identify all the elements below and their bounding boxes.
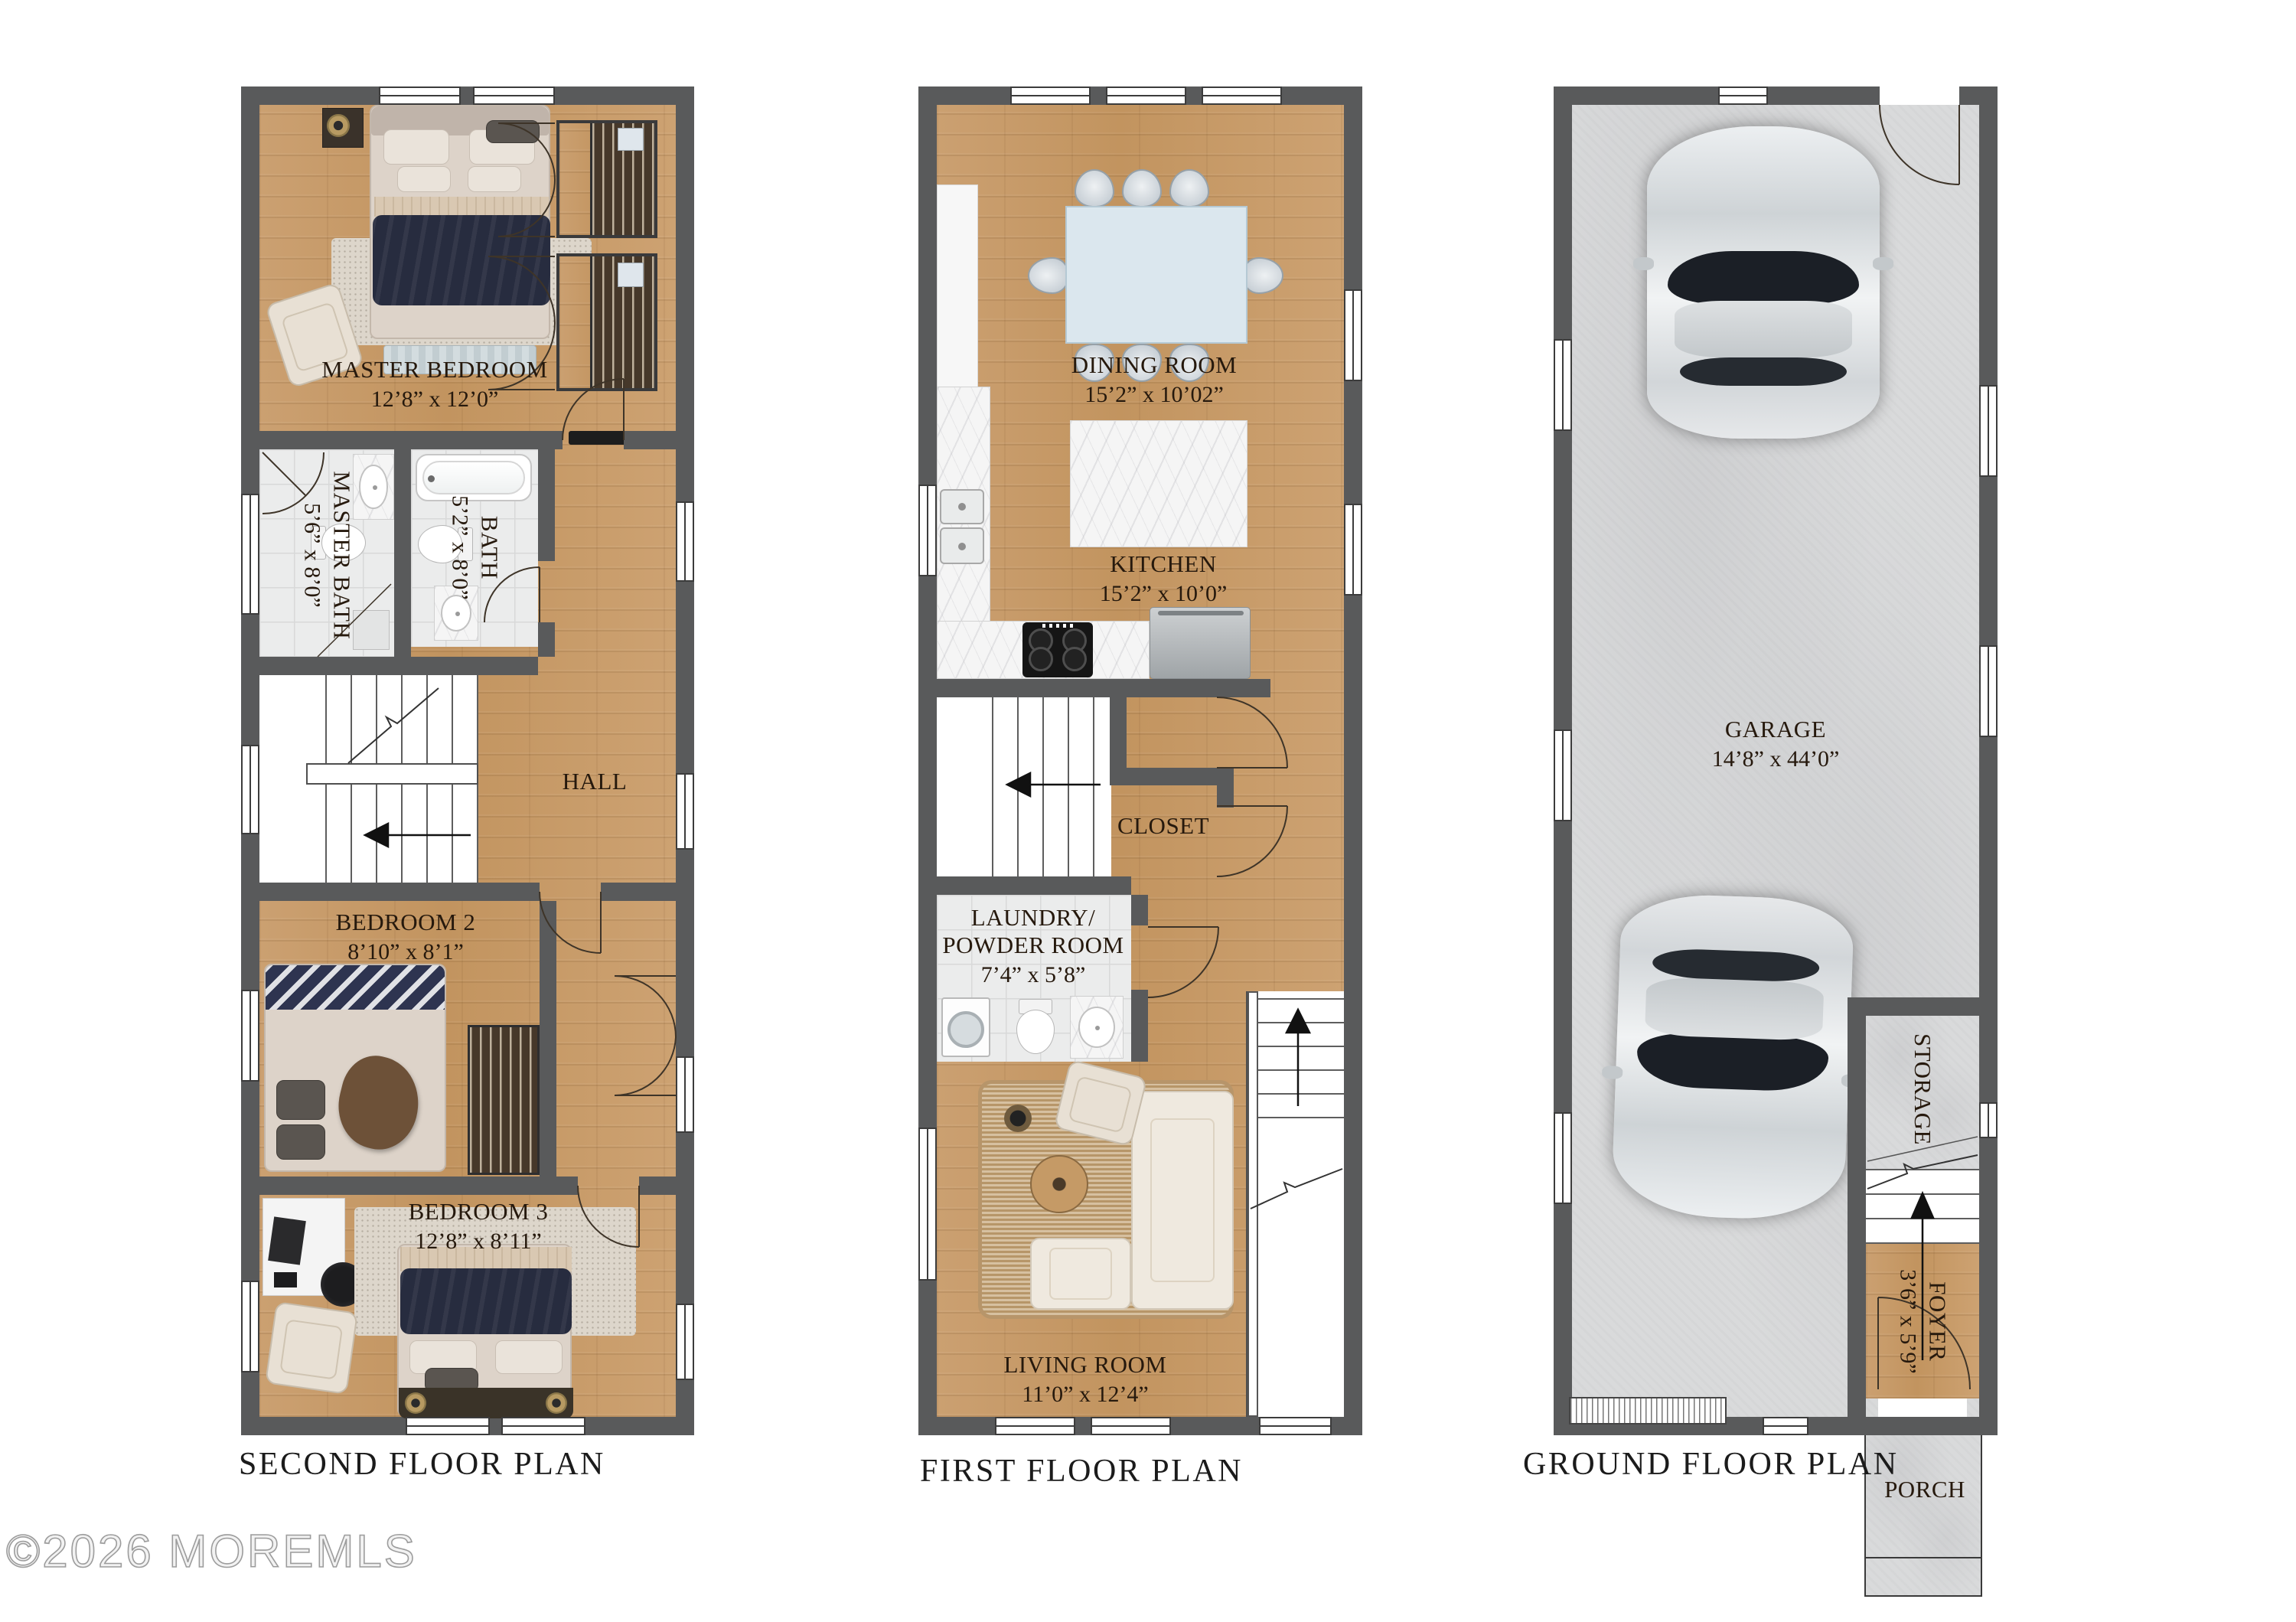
- room-label-foyer: FOYER 3’6” x 5’9”: [1894, 1222, 1952, 1421]
- wall: [1217, 768, 1234, 808]
- throw-blanket: [329, 1049, 429, 1157]
- bed: [397, 1244, 572, 1417]
- first-floor-plan: DINING ROOM 15’2” x 10’02” KITCHEN 15’2”…: [918, 86, 1362, 1435]
- window: [1763, 1417, 1808, 1435]
- closet: [556, 120, 657, 238]
- coffee-table: [1030, 1155, 1088, 1213]
- pillow: [486, 120, 540, 143]
- floor-plan-sheet: MASTER BEDROOM 12’8” x 12’0” MASTER BATH…: [0, 0, 2296, 1622]
- window: [1202, 86, 1282, 105]
- shower: [353, 610, 390, 650]
- blanket: [373, 215, 550, 305]
- window: [1554, 339, 1572, 431]
- wall: [259, 657, 538, 675]
- sofa-chaise: [1030, 1238, 1131, 1310]
- window: [1091, 1417, 1171, 1435]
- refrigerator: [1150, 607, 1251, 679]
- wall: [259, 883, 540, 901]
- room-label-laundry: LAUNDRY/ POWDER ROOM 7’4” x 5’8”: [934, 904, 1133, 989]
- sofa: [1131, 1091, 1234, 1310]
- window: [676, 501, 694, 582]
- wall: [937, 679, 1270, 697]
- door-opening: [1880, 86, 1959, 105]
- title-ground-floor: GROUND FLOOR PLAN: [1523, 1446, 1899, 1483]
- kitchen-island: [1070, 420, 1247, 547]
- ground-floor-plan: GARAGE 14’8” x 44’0” STORAGE FOYER 3’6” …: [1554, 86, 1998, 1435]
- window: [241, 494, 259, 615]
- washer: [941, 997, 990, 1057]
- bathroom-sink: [353, 454, 394, 520]
- floor-lamp: [1004, 1105, 1032, 1132]
- window: [1979, 385, 1998, 477]
- wardrobe: [468, 1025, 540, 1175]
- pillow: [383, 129, 449, 165]
- wall: [601, 883, 676, 901]
- wall: [259, 1177, 578, 1195]
- pillow: [468, 166, 521, 192]
- wall: [624, 431, 676, 449]
- window: [676, 1056, 694, 1133]
- stair-treads: [1258, 997, 1344, 1118]
- window: [241, 1281, 259, 1372]
- closet: [556, 253, 657, 391]
- stair-rail: [1247, 991, 1258, 1417]
- wall: [259, 431, 563, 449]
- window: [406, 1417, 490, 1435]
- pillow: [397, 166, 451, 192]
- window: [918, 485, 937, 576]
- window: [473, 86, 555, 105]
- window: [1554, 729, 1572, 821]
- window: [1344, 504, 1362, 596]
- stair-rail: [306, 763, 478, 785]
- wall: [1848, 997, 1866, 1417]
- window: [1554, 1112, 1572, 1204]
- master-bed: [370, 105, 550, 339]
- stair-treads: [992, 697, 1111, 876]
- speaker: [546, 1392, 567, 1414]
- blanket: [400, 1268, 572, 1334]
- room-label-master-bath: MASTER BATH 5’6” x 8’0”: [298, 455, 356, 654]
- window: [1259, 1417, 1332, 1435]
- book: [274, 1272, 297, 1287]
- window: [676, 1304, 694, 1380]
- window: [241, 745, 259, 834]
- window: [241, 990, 259, 1082]
- window: [1344, 289, 1362, 381]
- room-label-hall: HALL: [472, 768, 717, 795]
- wall: [1131, 990, 1148, 1062]
- window: [1718, 86, 1768, 105]
- second-floor-plan: MASTER BEDROOM 12’8” x 12’0” MASTER BATH…: [241, 86, 694, 1435]
- cooktop: [1022, 622, 1093, 677]
- room-label-bedroom3: BEDROOM 3 12’8” x 8’11”: [356, 1198, 601, 1255]
- stair-treads: [325, 675, 478, 766]
- window: [501, 1417, 585, 1435]
- bed: [264, 964, 446, 1172]
- wall: [538, 622, 555, 657]
- storage-box: [618, 128, 644, 151]
- kitchen-sink: [940, 489, 984, 564]
- room-label-bath: BATH 5’2” x 8’0”: [446, 459, 504, 635]
- watermark: ©2026 MOREMLS: [6, 1525, 417, 1578]
- title-first-floor: FIRST FLOOR PLAN: [920, 1453, 1243, 1490]
- car: [1611, 893, 1854, 1222]
- storage-box: [618, 263, 644, 287]
- powder-sink: [1070, 996, 1124, 1059]
- wall: [1110, 768, 1217, 785]
- room-label-closet: CLOSET: [1041, 812, 1286, 840]
- room-label-garage: GARAGE 14’8” x 44’0”: [1653, 716, 1898, 773]
- car: [1647, 126, 1880, 439]
- sheet-fold: [374, 197, 549, 217]
- title-second-floor: SECOND FLOOR PLAN: [239, 1446, 605, 1483]
- faucet: [428, 475, 435, 482]
- wall: [1131, 895, 1148, 925]
- wall: [394, 449, 411, 657]
- window: [1979, 1102, 1998, 1138]
- wall: [937, 876, 1131, 895]
- lamp: [327, 114, 350, 137]
- room-label-dining: DINING ROOM 15’2” x 10’02”: [1032, 351, 1277, 409]
- wall: [540, 901, 556, 1177]
- window: [1979, 645, 1998, 737]
- window: [379, 86, 461, 105]
- window: [1010, 86, 1091, 105]
- patterned-blanket: [266, 965, 445, 1010]
- toilet: [1015, 999, 1056, 1054]
- window: [918, 1128, 937, 1281]
- armchair: [265, 1301, 358, 1395]
- laptop: [268, 1216, 306, 1265]
- speaker: [405, 1392, 426, 1414]
- wall: [538, 449, 555, 561]
- wall: [1110, 697, 1127, 768]
- window: [995, 1417, 1075, 1435]
- room-label-master-bedroom: MASTER BEDROOM 12’8” x 12’0”: [312, 356, 557, 413]
- window: [1106, 86, 1186, 105]
- porch-step-line: [1866, 1557, 1981, 1558]
- room-label-living: LIVING ROOM 11’0” x 12’4”: [963, 1351, 1208, 1408]
- garage-door: [1569, 1397, 1727, 1425]
- wall: [639, 1177, 676, 1195]
- dining-table: [1065, 206, 1247, 344]
- room-label-storage: STORAGE: [1909, 990, 1936, 1189]
- room-label-kitchen: KITCHEN 15’2” x 10’0”: [1041, 550, 1286, 608]
- pillow: [495, 1340, 563, 1374]
- stair-treads: [325, 783, 478, 883]
- pillow: [276, 1080, 325, 1120]
- pillow: [276, 1124, 325, 1160]
- room-label-bedroom2: BEDROOM 2 8’10” x 8’1”: [283, 909, 528, 966]
- buffet-counter: [937, 184, 978, 390]
